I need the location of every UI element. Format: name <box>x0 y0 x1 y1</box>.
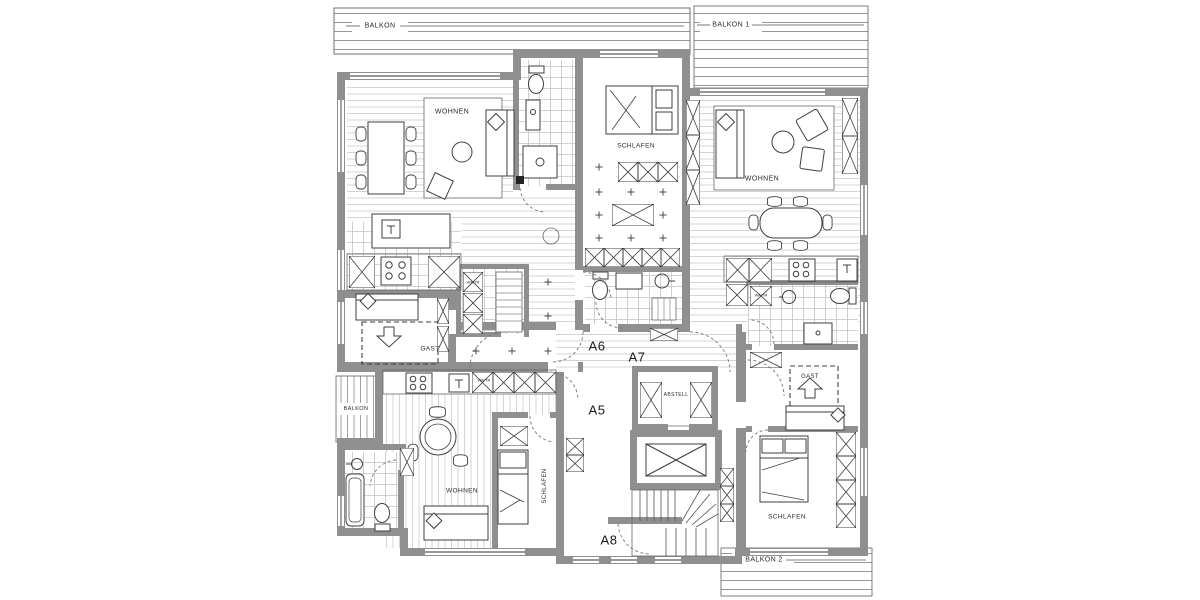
window-bottom-a5 <box>425 549 525 555</box>
window-top-left <box>350 73 500 79</box>
bedroom-right-label: SCHLAFEN <box>768 514 806 521</box>
bedroom-middle-label: SCHLAFEN <box>617 143 655 150</box>
shelves <box>496 272 522 332</box>
guest-foldout-outline <box>362 322 438 364</box>
foldout-arrow <box>798 378 822 398</box>
storage-label: ABSTELL <box>664 392 689 398</box>
balcony-1-label: BALKON 1 <box>712 22 749 29</box>
pillow <box>656 112 672 130</box>
toilet-tank <box>375 524 390 531</box>
door-a8 <box>618 524 650 554</box>
laundry-a5-label: WA/TR <box>478 378 491 383</box>
dining-table <box>760 208 822 238</box>
side-table <box>452 142 472 162</box>
window-left-1 <box>338 100 344 172</box>
window-top-right <box>700 89 825 95</box>
foldout-arrow <box>377 327 401 347</box>
living-right-label: WOHNEN <box>745 176 779 183</box>
toilet <box>593 281 608 300</box>
bedroom-a5-label: SCHLAFEN <box>542 468 548 503</box>
unit-a7-label: A7 <box>629 350 646 365</box>
pillow <box>785 439 806 453</box>
washbasin <box>616 273 642 289</box>
window-bottom-right <box>750 549 828 555</box>
guest-right-label: GAST <box>801 374 819 380</box>
coffee-table <box>772 131 794 153</box>
window-left-2 <box>338 250 344 290</box>
balcony-top-left-label: BALKON <box>365 23 396 30</box>
window-right-2 <box>861 302 867 334</box>
unit-a5-label: A5 <box>589 403 606 418</box>
balcony-top-left <box>334 8 690 54</box>
pillow <box>762 439 783 453</box>
laundry-left-label: WA/TR <box>467 280 480 285</box>
window-left-3 <box>338 302 344 344</box>
window-right-1 <box>861 185 867 235</box>
door-pivot <box>516 176 524 184</box>
window-top-middle <box>600 51 658 57</box>
unit-a6-label: A6 <box>589 339 606 354</box>
toilet <box>831 289 850 304</box>
window-bottom-stair-3 <box>655 557 681 563</box>
living-a5-label: WOHNEN <box>446 488 478 495</box>
laundry-right-label: WA/TR <box>755 293 768 298</box>
window-bottom-stair-1 <box>573 557 599 563</box>
stove <box>381 257 411 285</box>
window-bottom-stair-2 <box>611 557 637 563</box>
floor-plan-drawing <box>0 0 1200 600</box>
living-left-label: WOHNEN <box>435 109 469 116</box>
pillow <box>656 90 672 108</box>
balcony-1 <box>694 6 868 88</box>
floor-plan-canvas: BALKON BALKON 1 BALKON 2 BALKON WOHNEN W… <box>0 0 1200 600</box>
toilet-tank <box>529 66 544 73</box>
stove <box>406 373 432 393</box>
stove <box>789 259 815 281</box>
door-bedroom-a5 <box>530 416 554 442</box>
window-right-3 <box>861 448 867 496</box>
washer-dryer <box>472 372 493 393</box>
toilet <box>375 504 390 523</box>
balcony-a5-label: BALKON <box>344 406 369 412</box>
pillow <box>500 452 526 468</box>
dining-table <box>368 122 404 194</box>
toilet-tank <box>849 288 856 304</box>
guest-left-label: GAST <box>420 346 439 353</box>
toilet <box>529 75 544 94</box>
window-left-4 <box>338 496 344 526</box>
armchair <box>800 147 825 172</box>
unit-a8-label: A8 <box>601 533 618 548</box>
balcony-2-label: BALKON 2 <box>745 557 782 564</box>
shower <box>804 323 832 344</box>
shower <box>523 146 557 178</box>
